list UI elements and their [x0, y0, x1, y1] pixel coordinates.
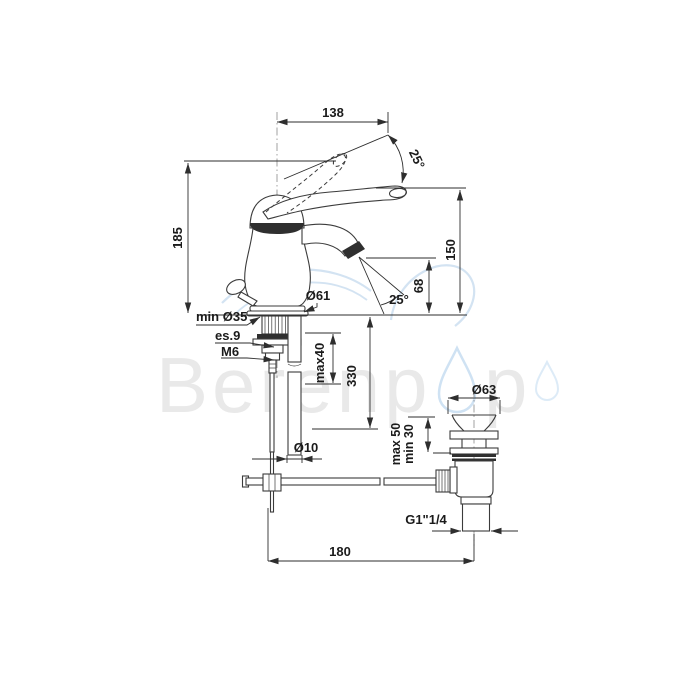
dim-25deg-handle — [284, 135, 403, 183]
rod-clamp — [263, 474, 281, 491]
label-max-deck: max40 — [312, 343, 327, 383]
label-reach: 138 — [322, 105, 344, 120]
label-min-hole: min Ø35 — [196, 309, 247, 324]
label-spout-height: 150 — [443, 239, 458, 261]
m6-stud — [269, 360, 276, 373]
technical-drawing-canvas: Berenp p — [0, 0, 685, 685]
label-outlet-angle: 25° — [389, 292, 409, 307]
dim-o10 — [252, 455, 322, 463]
label-base-diameter: Ø61 — [306, 288, 331, 303]
label-cap-diameter: Ø63 — [472, 382, 497, 397]
drain-cap-flange — [450, 431, 498, 439]
watermark-drop-icon — [439, 348, 475, 412]
drain-body — [455, 461, 493, 497]
label-drain-min: min 30 — [402, 424, 416, 464]
label-spacing: 180 — [329, 544, 351, 559]
drain-gasket — [452, 454, 496, 457]
watermark: Berenp p — [156, 265, 558, 429]
label-outlet-height: 68 — [411, 279, 426, 293]
label-pipe-diameter: Ø10 — [294, 440, 319, 455]
label-drain-max: max 50 — [389, 423, 403, 465]
drain-tailpipe — [463, 504, 490, 531]
label-drain-thread: G1"1/4 — [405, 512, 447, 527]
drain-side-boss — [450, 467, 457, 493]
supply-pipe — [288, 316, 301, 362]
lever-handle — [263, 186, 406, 219]
label-pipe-length: 330 — [344, 365, 359, 387]
hex-nut — [262, 345, 283, 353]
popup-rod — [270, 373, 274, 452]
label-total-height: 185 — [170, 227, 185, 249]
label-thread-size: M6 — [221, 344, 239, 359]
faucet-technical-drawing-page: Berenp p — [0, 0, 685, 685]
watermark-small-drop-icon — [536, 362, 558, 400]
label-hex-size: es.9 — [215, 328, 240, 343]
label-handle-angle: 25° — [406, 147, 428, 171]
